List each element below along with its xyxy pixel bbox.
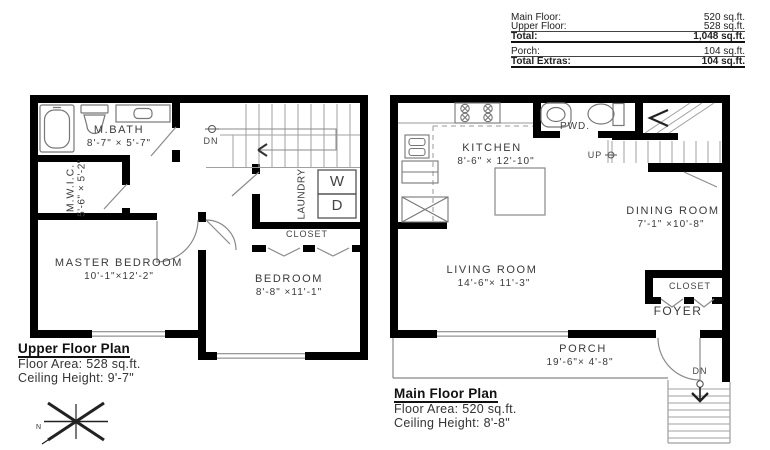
upper-floor-title: Upper Floor Plan (18, 342, 130, 358)
main-floor-title: Main Floor Plan (394, 387, 498, 403)
summary-row-total-extras: Total Extras: 104 sq.ft. (511, 57, 745, 68)
room-label-bedroom: BEDROOM (255, 273, 323, 285)
room-label-master-bedroom: MASTER BEDROOM (55, 257, 183, 269)
compass-north-label: N (36, 424, 41, 431)
upper-floor-ceiling: Ceiling Height: 9'-7" (18, 372, 141, 386)
room-dims-kitchen: 8'-6" × 12'-10" (457, 156, 534, 167)
room-label-laundry-name: LAUNDRY (297, 168, 308, 219)
exterior-stairs-icon (668, 380, 730, 443)
summary-label: Upper Floor: (511, 22, 567, 31)
summary-label: Total Extras: (511, 57, 571, 66)
room-dims-bedroom: 8'-8" ×11'-1" (256, 287, 322, 298)
bathtub-icon (40, 105, 74, 152)
upper-stairs-icon (205, 104, 360, 168)
room-label-living-room: LIVING ROOM (447, 264, 538, 276)
room-label-porch: PORCH (559, 343, 607, 355)
main-floor-windows (437, 331, 568, 337)
stairs-dn-label-upper: DN (204, 136, 219, 146)
kitchen-island-icon (495, 168, 545, 215)
room-label-dining-room: DINING ROOM (626, 205, 719, 217)
room-label-mwic-name: M.W.I.C. (65, 159, 77, 217)
closet-label-upper: CLOSET (286, 229, 328, 239)
summary-label: Porch: (511, 47, 540, 56)
summary-value: 1,048 sq.ft. (693, 32, 745, 41)
main-floor-walls (390, 95, 730, 382)
room-label-foyer: FOYER (654, 304, 703, 318)
stove-icon (455, 103, 500, 123)
room-label-laundry: LAUNDRY (297, 168, 308, 219)
room-dims-master-bedroom: 10'-1"×12'-2" (84, 271, 154, 282)
stairs-up-label-main: UP (588, 150, 603, 160)
summary-value: 104 sq.ft. (702, 57, 745, 66)
compass-icon (42, 403, 108, 444)
room-dims-mwic: 5'-6" × 5'-2" (77, 159, 88, 217)
floorplan-page: Main Floor: 520 sq.ft. Upper Floor: 528 … (0, 0, 770, 450)
summary-row-total: Total: 1,048 sq.ft. (511, 32, 745, 43)
fridge-icon (402, 197, 448, 222)
main-stairs-icon (605, 103, 720, 187)
summary-value: 104 sq.ft. (704, 47, 745, 56)
room-label-pwd: PWD. (560, 121, 590, 132)
summary-value: 528 sq.ft. (704, 22, 745, 31)
room-dims-living-room: 14'-6"× 11'-3" (458, 278, 531, 289)
closet-label-main: CLOSET (669, 281, 711, 291)
main-floor-titleblock: Main Floor Plan Floor Area: 520 sq.ft. C… (394, 385, 517, 430)
washer-label: W (330, 173, 344, 190)
dryer-label: D (332, 197, 343, 214)
kitchen-sink-icon (405, 135, 429, 158)
area-summary-table: Main Floor: 520 sq.ft. Upper Floor: 528 … (511, 13, 745, 68)
porch-outline (393, 338, 668, 378)
main-floor-area: Floor Area: 520 sq.ft. (394, 403, 517, 417)
pwd-toilet-icon (588, 104, 624, 126)
room-label-mwic: M.W.I.C. 5'-6" × 5'-2" (65, 159, 88, 217)
room-dims-mbath: 8'-7" × 5'-7" (87, 138, 151, 149)
room-dims-dining-room: 7'-1" ×10'-8" (637, 219, 704, 230)
room-label-kitchen: KITCHEN (462, 142, 521, 154)
room-dims-porch: 19'-6"× 4'-8" (546, 357, 613, 368)
upper-floor-area: Floor Area: 528 sq.ft. (18, 358, 141, 372)
vanity-sink-icon (116, 105, 170, 122)
summary-label: Total: (511, 32, 537, 41)
room-label-mbath: M.BATH (94, 124, 144, 136)
upper-floor-titleblock: Upper Floor Plan Floor Area: 528 sq.ft. … (18, 340, 141, 385)
stairs-dn-label-main: DN (693, 366, 708, 376)
main-floor-ceiling: Ceiling Height: 8'-8" (394, 417, 517, 431)
